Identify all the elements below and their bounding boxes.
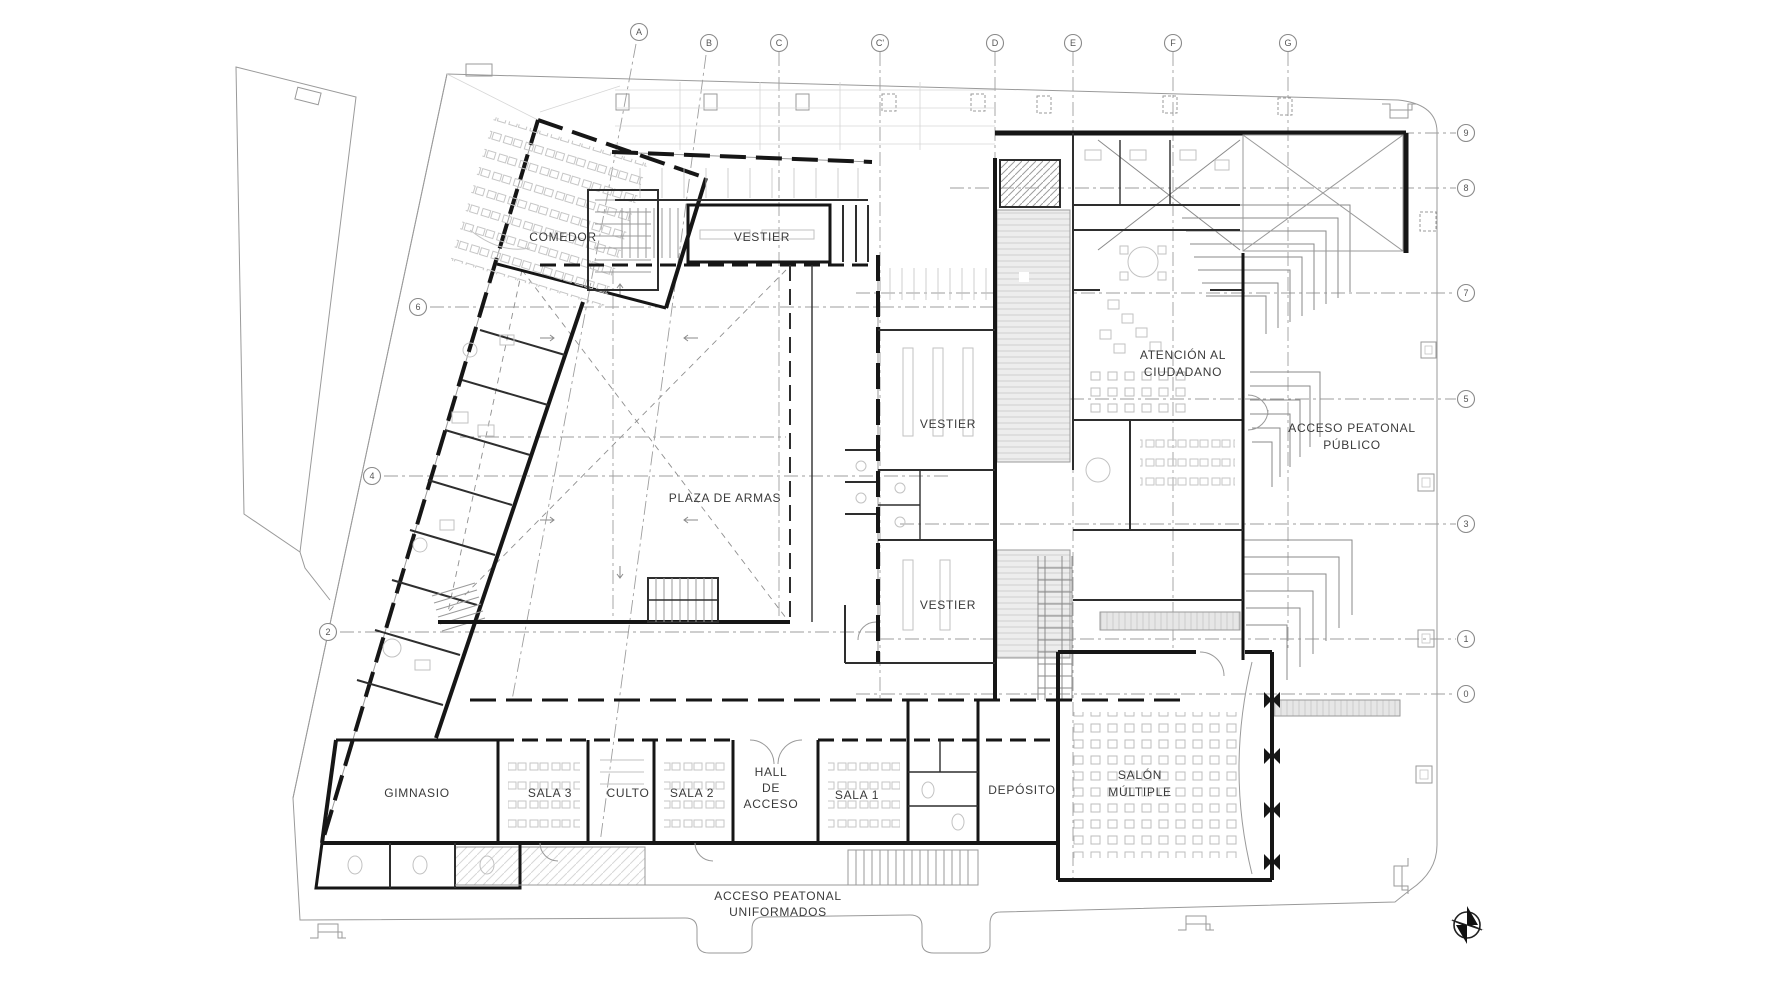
svg-text:G: G [1284,38,1291,48]
label-hall-2: DE [762,781,780,795]
compass-north-icon [1450,906,1484,944]
grid-bubble-right-3: 5 [1458,391,1475,408]
room-salon-multiple [1058,652,1280,880]
svg-text:8: 8 [1463,183,1468,193]
svg-text:4: 4 [369,471,374,481]
svg-text:6: 6 [415,302,420,312]
floor-plan-canvas: COMEDOR VESTIER VESTIER VESTIER PLAZA DE… [0,0,1776,1006]
wing-fixtures [383,335,514,670]
grid-bubble-top-0: A [631,24,648,41]
svg-text:A: A [636,27,642,37]
label-atencion-1: ATENCIÓN AL [1140,347,1226,362]
svg-text:F: F [1170,38,1176,48]
svg-text:9: 9 [1463,128,1468,138]
grid-bubble-right-6: 0 [1458,686,1475,703]
svg-text:7: 7 [1463,288,1468,298]
label-acceso-publico-1: ACCESO PEATONAL [1288,421,1415,435]
svg-text:1: 1 [1463,634,1468,644]
shaft-hatch [1000,160,1060,207]
svg-text:5: 5 [1463,394,1468,404]
grid-bubble-left-0: 6 [410,299,427,316]
grid-bubble-top-4: D [987,35,1004,52]
floor-plan-page: COMEDOR VESTIER VESTIER VESTIER PLAZA DE… [0,0,1776,1006]
grid-bubble-top-7: G [1280,35,1297,52]
patio-strips [997,210,1070,658]
svg-text:B: B [706,38,712,48]
label-sala2: SALA 2 [670,786,714,800]
label-salon-2: MÚLTIPLE [1108,784,1171,799]
grid-bubble-top-1: B [701,35,718,52]
grid-bubble-right-1: 8 [1458,180,1475,197]
svg-text:E: E [1070,38,1076,48]
grid-bubble-right-4: 3 [1458,516,1475,533]
svg-text:3: 3 [1463,519,1468,529]
label-hall-1: HALL [755,765,788,779]
grid-bubble-left-2: 2 [320,624,337,641]
stair-plaza-south [648,578,718,622]
grid-bubbles-right: 9 8 7 5 3 1 0 [1458,125,1475,703]
label-acceso-unif-1: ACCESO PEATONAL [714,889,841,903]
plaza-de-armas [448,270,786,618]
plaza-arrows [540,284,698,578]
plaza-east-gallery [438,265,878,622]
grid-bubble-top-3: C' [872,35,889,52]
label-culto: CULTO [606,786,649,800]
svg-text:D: D [992,38,999,48]
stair-top-wing [622,208,678,258]
porch-stairs [848,850,978,885]
svg-text:C': C' [876,38,884,48]
svg-text:0: 0 [1463,689,1468,699]
label-sala1: SALA 1 [835,788,879,802]
label-vestier-top: VESTIER [734,230,790,244]
grid-bubble-top-5: E [1065,35,1082,52]
label-acceso-unif-2: UNIFORMADOS [729,905,827,919]
label-acceso-publico-2: PÚBLICO [1323,437,1381,452]
grid-bubble-right-2: 7 [1458,285,1475,302]
label-salon-1: SALÓN [1118,767,1162,782]
label-vestier-mid: VESTIER [920,417,976,431]
locker-row [640,168,858,198]
label-comedor: COMEDOR [529,230,597,244]
grid-bubbles-top: A B C C' D E F G [631,24,1297,52]
wing-partitions [357,330,565,705]
svg-text:C: C [776,38,783,48]
svg-text:2: 2 [325,627,330,637]
label-gimnasio: GIMNASIO [384,786,450,800]
label-vestier-low: VESTIER [920,598,976,612]
grid-bubble-top-2: C [771,35,788,52]
label-sala3: SALA 3 [528,786,572,800]
grid-bubble-left-1: 4 [364,468,381,485]
grid-bubble-right-5: 1 [1458,631,1475,648]
grid-bubble-top-6: F [1165,35,1182,52]
label-deposito: DEPÓSITO [988,782,1055,797]
label-atencion-2: CIUDADANO [1144,365,1222,379]
label-plaza: PLAZA DE ARMAS [669,491,782,505]
label-hall-3: ACCESO [744,797,799,811]
grid-bubbles-left: 6 4 2 [320,299,427,641]
grid-bubble-right-0: 9 [1458,125,1475,142]
